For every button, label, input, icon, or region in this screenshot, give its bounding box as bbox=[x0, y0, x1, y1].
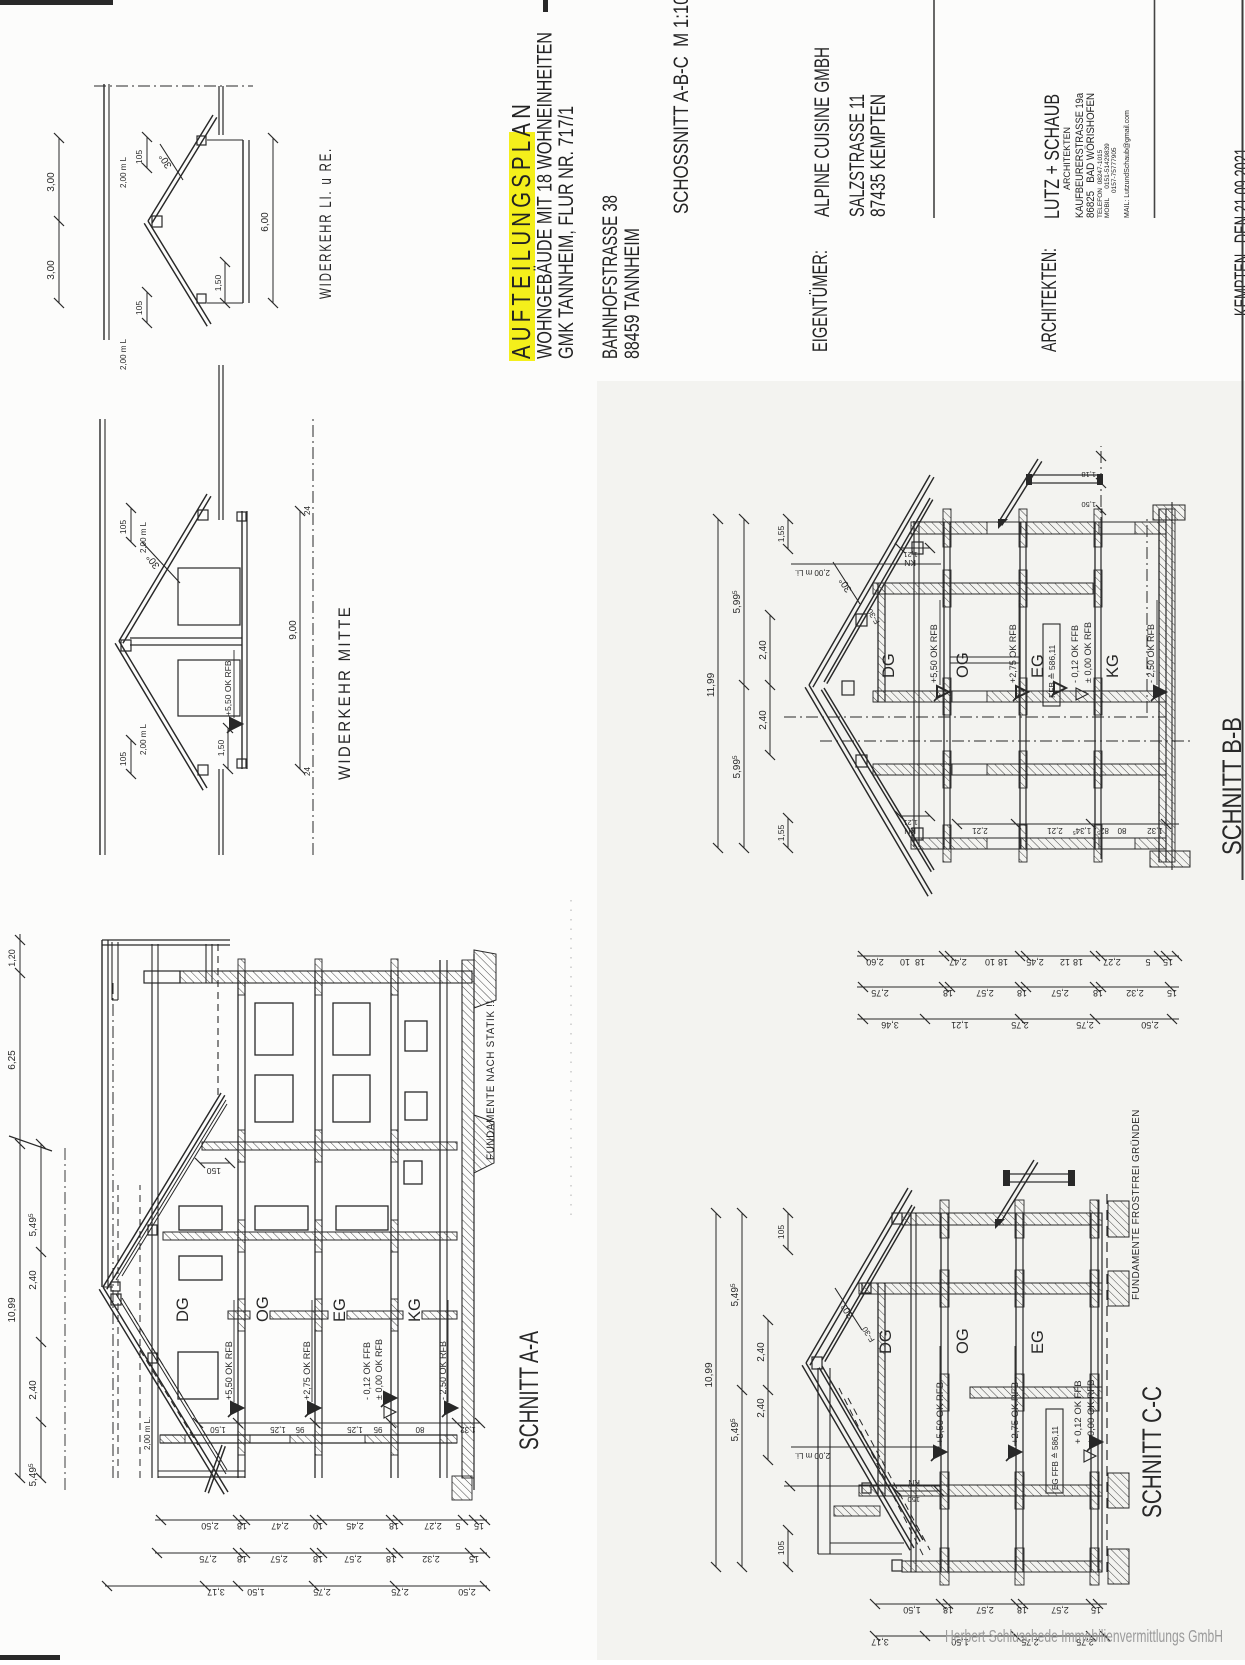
svg-text:EG: EG bbox=[1029, 1330, 1047, 1354]
svg-text:2,50: 2,50 bbox=[1141, 1020, 1159, 1030]
svg-text:2,50: 2,50 bbox=[201, 1521, 219, 1531]
svg-text:LUTZ + SCHAUB: LUTZ + SCHAUB bbox=[1040, 94, 1064, 219]
svg-text:105: 105 bbox=[118, 520, 128, 534]
svg-text:150: 150 bbox=[907, 1495, 920, 1504]
svg-text:1,25: 1,25 bbox=[347, 1425, 363, 1434]
svg-text:1,21: 1,21 bbox=[903, 550, 918, 559]
svg-text:80: 80 bbox=[1117, 826, 1126, 835]
svg-text:OG: OG bbox=[954, 1328, 972, 1354]
svg-text:2,40: 2,40 bbox=[28, 1270, 39, 1290]
svg-text:18: 18 bbox=[943, 988, 953, 998]
svg-text:EIGENTÜMER:: EIGENTÜMER: bbox=[808, 250, 832, 352]
svg-text:2,75: 2,75 bbox=[1076, 1020, 1094, 1030]
svg-text:12: 12 bbox=[1060, 957, 1070, 967]
svg-text:95: 95 bbox=[373, 1425, 382, 1434]
svg-text:2,47: 2,47 bbox=[949, 957, 967, 967]
svg-text:FUNDAMENTE FROSTFREI GRÜNDEN: FUNDAMENTE FROSTFREI GRÜNDEN bbox=[1130, 1109, 1142, 1300]
svg-text:2,21: 2,21 bbox=[972, 826, 988, 835]
svg-text:KG: KG bbox=[406, 1298, 424, 1322]
svg-text:2,45: 2,45 bbox=[346, 1521, 364, 1531]
svg-text:AUFTEILUNGSPLAN: AUFTEILUNGSPLAN bbox=[507, 100, 536, 359]
svg-text:+ 0,12 OK FFB: + 0,12 OK FFB bbox=[1073, 1380, 1084, 1444]
svg-text:2,75: 2,75 bbox=[199, 1554, 217, 1564]
svg-text:EG FFB ≙ 586,11: EG FFB ≙ 586,11 bbox=[1051, 1426, 1060, 1490]
svg-text:WOHNGEBÄUDE MIT 18 WOHNEINHEIT: WOHNGEBÄUDE MIT 18 WOHNEINHEITEN bbox=[533, 32, 557, 359]
svg-text:15: 15 bbox=[1163, 957, 1173, 967]
svg-text:SCHOSSNITT A-B-C M 1:100: SCHOSSNITT A-B-C M 1:100 bbox=[669, 0, 693, 214]
svg-text:9,00: 9,00 bbox=[288, 620, 299, 640]
svg-text:2,40: 2,40 bbox=[756, 1342, 767, 1362]
svg-text:1,32: 1,32 bbox=[1147, 826, 1163, 835]
svg-text:- 0,12 OK FFB: - 0,12 OK FFB bbox=[362, 1342, 372, 1400]
svg-text:2,75: 2,75 bbox=[391, 1587, 409, 1597]
svg-text:2,40: 2,40 bbox=[28, 1380, 39, 1400]
svg-text:2,57: 2,57 bbox=[344, 1554, 362, 1564]
svg-text:EG: EG bbox=[331, 1298, 349, 1322]
svg-text:+5,50 OK RFB: +5,50 OK RFB bbox=[935, 1382, 946, 1444]
svg-text:15: 15 bbox=[474, 1521, 484, 1531]
svg-text:105: 105 bbox=[776, 1225, 786, 1239]
svg-text:2,27: 2,27 bbox=[1103, 957, 1121, 967]
svg-text:OG: OG bbox=[254, 1296, 272, 1322]
svg-text:± 0,00 OK RFB: ± 0,00 OK RFB bbox=[1086, 1380, 1097, 1444]
svg-text:1,50: 1,50 bbox=[210, 1425, 226, 1434]
svg-text:2,45: 2,45 bbox=[1026, 957, 1044, 967]
svg-text:105: 105 bbox=[134, 150, 144, 164]
svg-text:+2,75 OK RFB: +2,75 OK RFB bbox=[1010, 1382, 1021, 1444]
svg-text:0157-75777905: 0157-75777905 bbox=[1111, 147, 1118, 193]
svg-text:FFB ≙ 586,11: FFB ≙ 586,11 bbox=[1047, 644, 1057, 698]
svg-text:MOBIL 0151-51429839: MOBIL 0151-51429839 bbox=[1104, 143, 1111, 218]
svg-text:DG: DG bbox=[174, 1297, 192, 1322]
svg-text:24: 24 bbox=[303, 767, 312, 776]
svg-text:18: 18 bbox=[1093, 988, 1103, 998]
svg-text:2,00 m L.: 2,00 m L. bbox=[143, 1417, 152, 1450]
svg-text:+2,75 OK RFB: +2,75 OK RFB bbox=[302, 1341, 312, 1400]
svg-text:1,50: 1,50 bbox=[216, 739, 226, 756]
svg-text:2,57: 2,57 bbox=[1051, 988, 1069, 998]
svg-text:1,20: 1,20 bbox=[7, 949, 17, 967]
svg-text:5: 5 bbox=[455, 1521, 460, 1531]
svg-text:105: 105 bbox=[118, 752, 128, 766]
svg-text:MAIL: LutzundSchaub@gmail.com: MAIL: LutzundSchaub@gmail.com bbox=[1124, 110, 1131, 218]
svg-text:105: 105 bbox=[134, 301, 144, 315]
svg-text:Herbert Schluschede Immobilien: Herbert Schluschede Immobilienvermittlun… bbox=[945, 1626, 1223, 1646]
svg-text:DG: DG bbox=[880, 653, 898, 678]
svg-text:2,32: 2,32 bbox=[422, 1554, 440, 1564]
svg-text:+5,50 OK RFB: +5,50 OK RFB bbox=[224, 1341, 234, 1400]
svg-text:2,47: 2,47 bbox=[271, 1521, 289, 1531]
svg-text:88459 TANNHEIM: 88459 TANNHEIM bbox=[620, 228, 644, 359]
svg-text:1,50: 1,50 bbox=[1081, 500, 1096, 509]
svg-text:18: 18 bbox=[237, 1554, 247, 1564]
svg-text:3,17: 3,17 bbox=[207, 1587, 225, 1597]
svg-text:18: 18 bbox=[1017, 988, 1027, 998]
svg-text:2,00 m Li.: 2,00 m Li. bbox=[795, 568, 830, 577]
svg-text:WIDERKEHR MITTE: WIDERKEHR MITTE bbox=[335, 605, 354, 780]
svg-text:2,40: 2,40 bbox=[758, 710, 769, 730]
svg-text:18: 18 bbox=[389, 1521, 399, 1531]
svg-text:18: 18 bbox=[386, 1554, 396, 1564]
svg-text:2,57: 2,57 bbox=[270, 1554, 288, 1564]
svg-text:3,00: 3,00 bbox=[46, 172, 57, 192]
svg-text:2,21: 2,21 bbox=[1047, 826, 1063, 835]
svg-text:2,00 m L: 2,00 m L bbox=[139, 723, 148, 755]
svg-text:1,50: 1,50 bbox=[213, 274, 223, 291]
svg-text:18: 18 bbox=[1017, 1605, 1027, 1615]
svg-text:2,32: 2,32 bbox=[1126, 988, 1144, 998]
svg-text:2,57: 2,57 bbox=[976, 988, 994, 998]
svg-text:BAHNHOFSTRASSE 38: BAHNHOFSTRASSE 38 bbox=[598, 195, 622, 359]
svg-text:2,40: 2,40 bbox=[756, 1398, 767, 1418]
svg-text:3,17: 3,17 bbox=[871, 1637, 889, 1647]
svg-text:18: 18 bbox=[998, 957, 1008, 967]
svg-text:- 0,12 OK FFB: - 0,12 OK FFB bbox=[1070, 625, 1080, 683]
svg-text:2,00 m Li.: 2,00 m Li. bbox=[795, 1451, 830, 1460]
svg-text:80: 80 bbox=[415, 1425, 424, 1434]
svg-text:15: 15 bbox=[1091, 1605, 1101, 1615]
svg-text:ALPINE CUISINE GMBH: ALPINE CUISINE GMBH bbox=[810, 47, 834, 217]
svg-text:ARCHITEKTEN: ARCHITEKTEN bbox=[1062, 127, 1073, 190]
svg-text:2,00 m L: 2,00 m L bbox=[139, 521, 148, 553]
svg-text:OG: OG bbox=[954, 652, 972, 678]
svg-text:2,75: 2,75 bbox=[871, 988, 889, 998]
svg-text:TELEFON 08247-1015: TELEFON 08247-1015 bbox=[1097, 149, 1104, 218]
svg-text:1,21: 1,21 bbox=[951, 1020, 969, 1030]
svg-text:10,99: 10,99 bbox=[7, 1297, 18, 1322]
svg-text:10: 10 bbox=[985, 957, 995, 967]
svg-text:1,32: 1,32 bbox=[460, 1425, 476, 1434]
svg-text:18: 18 bbox=[237, 1521, 247, 1531]
svg-text:1,25: 1,25 bbox=[270, 1425, 286, 1434]
svg-text:± 0,00 OK RFB: ± 0,00 OK RFB bbox=[1083, 622, 1093, 683]
svg-text:6,00: 6,00 bbox=[260, 212, 271, 232]
svg-text:2,75: 2,75 bbox=[1011, 1020, 1029, 1030]
svg-text:1,50: 1,50 bbox=[247, 1587, 265, 1597]
svg-text:15: 15 bbox=[1167, 988, 1177, 998]
svg-text:18: 18 bbox=[915, 957, 925, 967]
svg-text:SCHNITT A-A: SCHNITT A-A bbox=[514, 1331, 544, 1450]
svg-text:2,50: 2,50 bbox=[458, 1587, 476, 1597]
svg-text:1,55: 1,55 bbox=[776, 824, 786, 841]
svg-text:1,55: 1,55 bbox=[776, 525, 786, 542]
svg-text:15: 15 bbox=[469, 1554, 479, 1564]
svg-text:18: 18 bbox=[1073, 957, 1083, 967]
svg-text:18: 18 bbox=[313, 1554, 323, 1564]
svg-text:2,57: 2,57 bbox=[1051, 1605, 1069, 1615]
svg-text:2,27: 2,27 bbox=[424, 1521, 442, 1531]
svg-text:+2,75 OK RFB: +2,75 OK RFB bbox=[1008, 624, 1018, 683]
svg-text:1,21: 1,21 bbox=[903, 818, 918, 827]
svg-text:5: 5 bbox=[1145, 957, 1150, 967]
svg-text:1,50: 1,50 bbox=[903, 1605, 921, 1615]
svg-text:2,40: 2,40 bbox=[758, 640, 769, 660]
svg-text:KN: KN bbox=[908, 1478, 920, 1488]
svg-text:1,18: 1,18 bbox=[1081, 470, 1096, 479]
svg-text:3,00: 3,00 bbox=[46, 260, 57, 280]
svg-text:2,00 m L: 2,00 m L bbox=[119, 338, 128, 370]
svg-text:86825 BAD WÖRISHOFEN: 86825 BAD WÖRISHOFEN bbox=[1085, 93, 1097, 218]
svg-text:3,46: 3,46 bbox=[881, 1020, 899, 1030]
svg-text:150: 150 bbox=[207, 1166, 221, 1176]
svg-text:10,99: 10,99 bbox=[704, 1362, 715, 1387]
svg-text:11,99: 11,99 bbox=[706, 672, 717, 697]
svg-text:105: 105 bbox=[776, 1541, 786, 1555]
svg-text:95: 95 bbox=[295, 1425, 304, 1434]
svg-text:2,00 m L: 2,00 m L bbox=[119, 156, 128, 188]
svg-text:+5,50 OK RFB: +5,50 OK RFB bbox=[223, 660, 233, 716]
svg-text:WIDERKEHR LI. u RE.: WIDERKEHR LI. u RE. bbox=[316, 147, 335, 299]
svg-text:24: 24 bbox=[303, 506, 312, 515]
svg-text:10: 10 bbox=[313, 1521, 323, 1531]
svg-text:EG: EG bbox=[1029, 654, 1047, 678]
svg-text:KG: KG bbox=[1104, 654, 1122, 678]
svg-text:87435 KEMPTEN: 87435 KEMPTEN bbox=[866, 94, 890, 217]
svg-text:2,60: 2,60 bbox=[866, 957, 884, 967]
svg-text:SCHNITT C-C: SCHNITT C-C bbox=[1137, 1386, 1167, 1518]
svg-text:+5,50 OK RFB: +5,50 OK RFB bbox=[929, 624, 939, 683]
svg-text:ARCHITEKTEN:: ARCHITEKTEN: bbox=[1037, 248, 1061, 352]
svg-text:SCHNITT B-B: SCHNITT B-B bbox=[1217, 717, 1245, 855]
svg-text:6,25: 6,25 bbox=[7, 1050, 18, 1070]
svg-text:DG: DG bbox=[877, 1329, 895, 1354]
svg-text:18: 18 bbox=[943, 1605, 953, 1615]
svg-text:FUNDAMENTE NACH STATIK !!: FUNDAMENTE NACH STATIK !! bbox=[485, 1000, 497, 1160]
svg-text:- 2,50 OK RFB: - 2,50 OK RFB bbox=[438, 1341, 448, 1400]
svg-text:10: 10 bbox=[900, 957, 910, 967]
svg-text:2,57: 2,57 bbox=[976, 1605, 994, 1615]
svg-text:2,75: 2,75 bbox=[313, 1587, 331, 1597]
svg-text:GMK TANNHEIM, FLUR NR. 717/1: GMK TANNHEIM, FLUR NR. 717/1 bbox=[554, 106, 578, 359]
svg-text:± 0,00 OK RFB: ± 0,00 OK RFB bbox=[374, 1339, 384, 1400]
